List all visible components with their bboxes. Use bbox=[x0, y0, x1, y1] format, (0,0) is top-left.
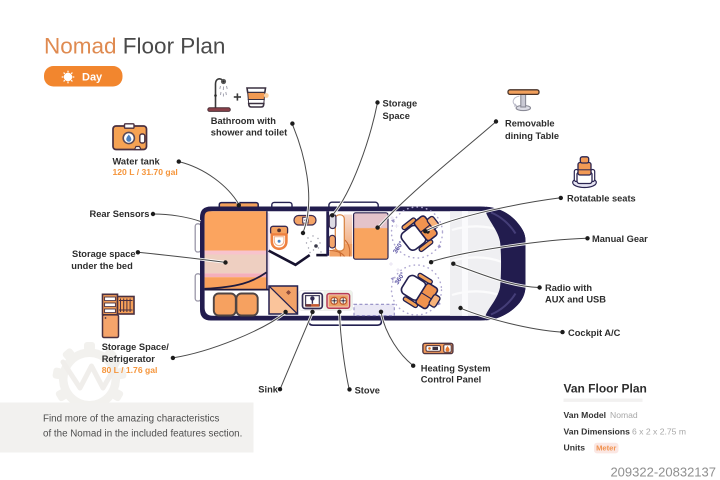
svg-text:Cockpit A/C: Cockpit A/C bbox=[568, 328, 621, 338]
svg-text:Van Model: Van Model bbox=[564, 410, 607, 420]
svg-text:Storage: Storage bbox=[383, 99, 418, 109]
svg-text:Nomad Floor Plan: Nomad Floor Plan bbox=[44, 34, 225, 59]
svg-text:Day: Day bbox=[82, 72, 103, 84]
svg-text:under the bed: under the bed bbox=[71, 261, 133, 271]
svg-text:AUX and USB: AUX and USB bbox=[545, 295, 606, 305]
svg-text:Van Dimensions: Van Dimensions bbox=[564, 426, 631, 436]
svg-text:209322-20832137: 209322-20832137 bbox=[610, 465, 716, 480]
svg-text:Stove: Stove bbox=[355, 386, 380, 396]
svg-text:Rotatable seats: Rotatable seats bbox=[567, 194, 636, 204]
svg-text:Heating System: Heating System bbox=[421, 363, 491, 373]
svg-text:of the Nomad in the included f: of the Nomad in the included features se… bbox=[43, 429, 242, 440]
svg-text:Nomad: Nomad bbox=[610, 410, 638, 420]
svg-text:Radio with: Radio with bbox=[545, 283, 592, 293]
svg-text:Control Panel: Control Panel bbox=[421, 374, 481, 384]
svg-text:80 L / 1.76 gal: 80 L / 1.76 gal bbox=[102, 365, 158, 375]
svg-text:Storage space: Storage space bbox=[72, 249, 136, 259]
svg-text:Water tank: Water tank bbox=[113, 157, 161, 167]
svg-text:Units: Units bbox=[564, 443, 586, 453]
svg-text:Meter: Meter bbox=[596, 443, 616, 452]
svg-text:dining Table: dining Table bbox=[505, 131, 559, 141]
svg-text:Manual Gear: Manual Gear bbox=[592, 234, 648, 244]
svg-text:Find more of the amazing chara: Find more of the amazing characteristics bbox=[43, 414, 220, 425]
svg-text:6 x 2 x 2.75 m: 6 x 2 x 2.75 m bbox=[632, 426, 686, 436]
svg-text:Sink: Sink bbox=[258, 385, 278, 395]
svg-text:Removable: Removable bbox=[505, 119, 555, 129]
svg-text:Rear Sensors: Rear Sensors bbox=[90, 209, 150, 219]
svg-text:Storage Space/: Storage Space/ bbox=[102, 342, 170, 352]
svg-text:Space: Space bbox=[383, 111, 410, 121]
svg-text:Van Floor Plan: Van Floor Plan bbox=[564, 382, 647, 396]
svg-text:Bathroom with: Bathroom with bbox=[211, 116, 276, 126]
svg-text:Refrigerator: Refrigerator bbox=[102, 354, 156, 364]
svg-text:120 L / 31.70 gal: 120 L / 31.70 gal bbox=[113, 167, 178, 177]
svg-text:shower and toilet: shower and toilet bbox=[211, 128, 287, 138]
